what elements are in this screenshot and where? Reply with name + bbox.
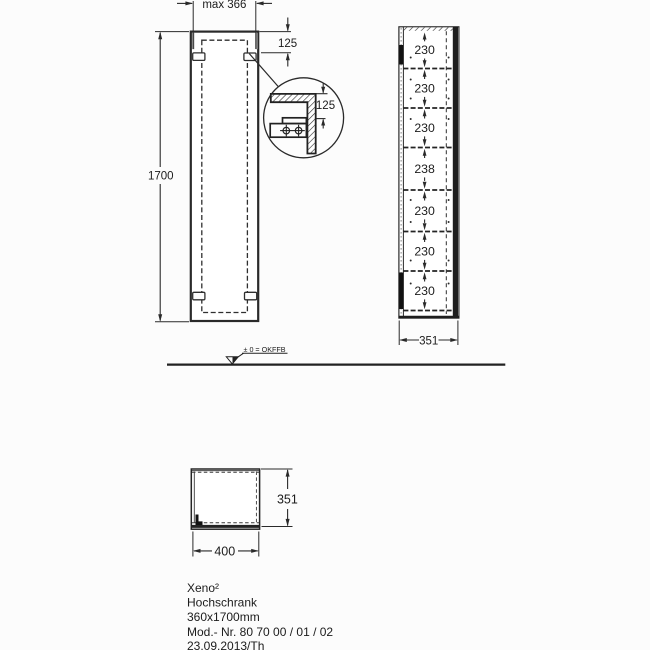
svg-text:± 0 = OKFFB: ± 0 = OKFFB [244,345,286,354]
svg-text:230: 230 [414,284,435,298]
svg-text:360x1700mm: 360x1700mm [187,610,260,624]
svg-text:125: 125 [316,100,335,112]
svg-text:230: 230 [414,82,435,96]
svg-text:238: 238 [414,162,435,176]
svg-text:Hochschrank: Hochschrank [187,596,258,610]
svg-text:230: 230 [414,204,435,218]
svg-text:125: 125 [278,38,297,50]
svg-text:Xeno²: Xeno² [187,581,219,595]
svg-text:351: 351 [419,335,438,347]
svg-text:Mod.- Nr. 80 70 00 / 01 / 02: Mod.- Nr. 80 70 00 / 01 / 02 [187,625,333,639]
svg-text:351: 351 [277,492,298,506]
svg-text:400: 400 [214,544,235,558]
svg-text:1700: 1700 [148,171,174,183]
svg-text:230: 230 [414,43,435,57]
svg-text:230: 230 [414,245,435,259]
svg-text:max 366: max 366 [202,0,246,11]
svg-text:230: 230 [414,121,435,135]
svg-text:23.09.2013/Th: 23.09.2013/Th [187,639,264,650]
